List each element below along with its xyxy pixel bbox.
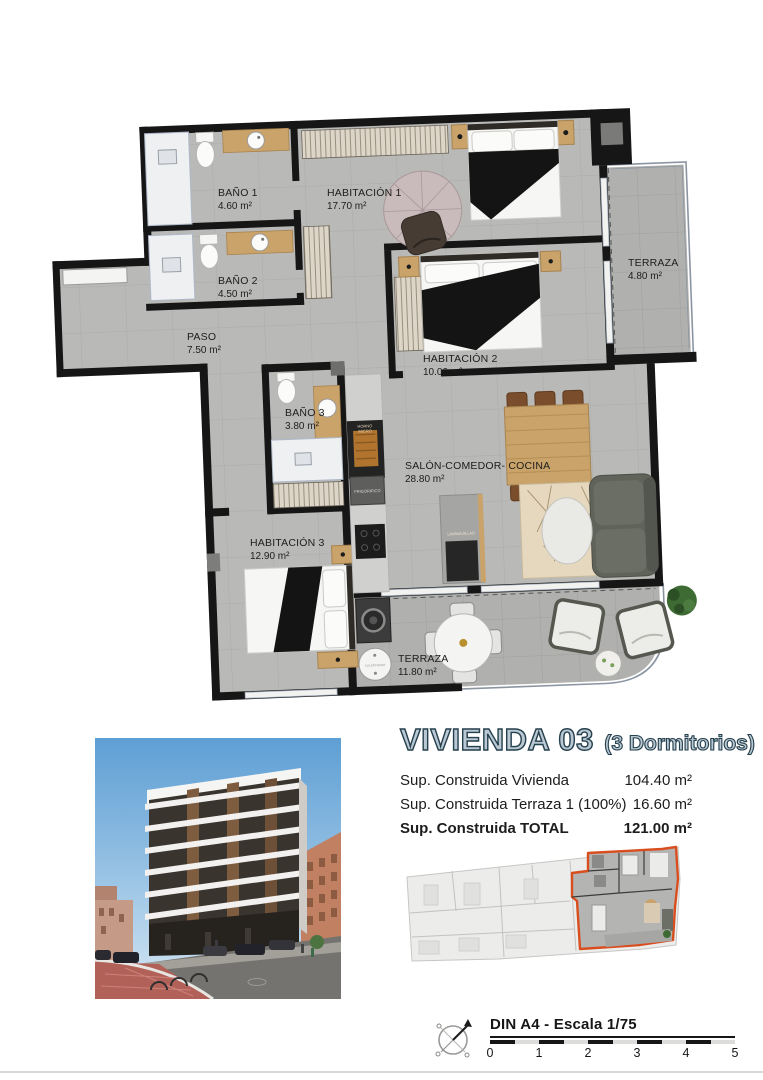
svg-text:3.80 m²: 3.80 m² <box>285 421 320 432</box>
washing-machine <box>356 598 392 643</box>
bed-habitacion-1 <box>451 120 577 221</box>
svg-text:4.80 m²: 4.80 m² <box>628 271 663 282</box>
svg-text:MICRO: MICRO <box>358 428 372 434</box>
unit-subtitle: (3 Dormitorios) <box>604 732 755 756</box>
svg-text:10.00 m²: 10.00 m² <box>423 367 463 378</box>
terrace-plant <box>666 585 697 616</box>
svg-text:17.70 m²: 17.70 m² <box>327 201 367 212</box>
main-building <box>145 768 307 956</box>
key-plan <box>404 845 684 969</box>
room-label-terraza2: TERRAZA <box>398 653 448 665</box>
room-label-paso: PASO <box>187 331 216 343</box>
room-label-habitacion3: HABITACIÓN 3 <box>250 536 325 549</box>
bed-habitacion-2 <box>398 251 564 353</box>
svg-text:11.80 m²: 11.80 m² <box>398 667 437 678</box>
page-footer-divider <box>0 1071 763 1073</box>
room-label-banio1: BAÑO 1 <box>218 186 258 199</box>
unit-info: VIVIENDA 03 (3 Dormitorios) Sup. Constru… <box>400 722 735 844</box>
unit-title: VIVIENDA 03 <box>400 722 594 758</box>
svg-text:7.50 m²: 7.50 m² <box>187 345 222 356</box>
floor-plan-sheet: { "floorplan": { "rooms": [ {"name": "BA… <box>0 0 763 1080</box>
svg-text:FRIGORIFICO: FRIGORIFICO <box>354 488 380 494</box>
surface-row-vivienda: Sup. Construida Vivienda 104.40 m² <box>400 772 692 789</box>
surface-row-terraza: Sup. Construida Terraza 1 (100%) 16.60 m… <box>400 796 692 813</box>
room-label-habitacion1: HABITACIÓN 1 <box>327 186 402 199</box>
north-arrow-compass-icon <box>432 1015 478 1065</box>
sofa <box>589 473 659 577</box>
unit-title-line: VIVIENDA 03 (3 Dormitorios) <box>400 722 735 758</box>
room-label-banio2: BAÑO 2 <box>218 274 258 287</box>
main-floor-plan: HORNO MICRO FRIGORIFICO LAVAVAJILLAS CAL… <box>38 92 738 732</box>
scale-numbers: 0 1 2 3 4 5 <box>490 1046 735 1062</box>
building-photo <box>95 738 341 999</box>
scale-rule-line <box>490 1036 735 1038</box>
scale-segments <box>490 1040 735 1044</box>
svg-text:4.50 m²: 4.50 m² <box>218 289 253 300</box>
surface-row-total: Sup. Construida TOTAL 121.00 m² <box>400 820 692 837</box>
svg-text:28.80 m²: 28.80 m² <box>405 474 445 485</box>
svg-text:4.60 m²: 4.60 m² <box>218 201 253 212</box>
room-label-terraza1: TERRAZA <box>628 257 678 269</box>
svg-text:12.90 m²: 12.90 m² <box>250 551 290 562</box>
keyplan-highlighted-unit <box>572 847 678 949</box>
scale-bar: DIN A4 - Escala 1/75 0 1 2 3 4 5 <box>490 1016 735 1062</box>
entrance-door <box>63 268 128 285</box>
surface-table: Sup. Construida Vivienda 104.40 m² Sup. … <box>400 772 692 837</box>
svg-text:LAVAVAJILLAS: LAVAVAJILLAS <box>447 530 475 536</box>
svg-text:CALENTADOR: CALENTADOR <box>365 663 386 668</box>
room-label-salon: SALÓN-COMEDOR- COCINA <box>405 459 550 472</box>
room-label-banio3: BAÑO 3 <box>285 406 325 419</box>
scale-label: DIN A4 - Escala 1/75 <box>490 1016 735 1033</box>
room-label-habitacion2: HABITACIÓN 2 <box>423 352 498 365</box>
